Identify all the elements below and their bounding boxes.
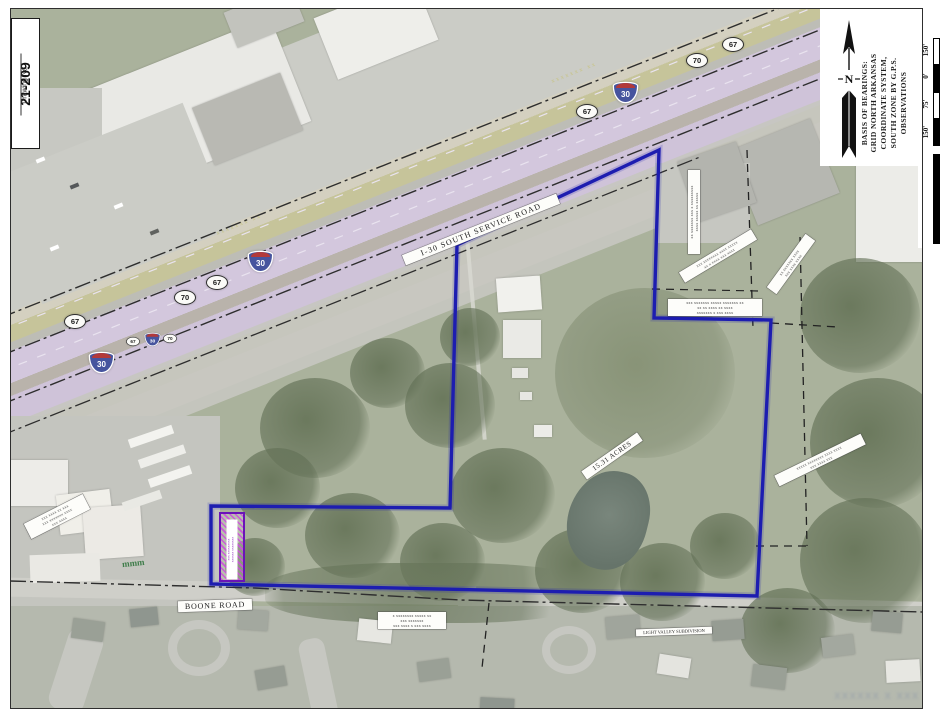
lane-line xyxy=(10,8,890,331)
us-70-shield: 70 xyxy=(686,53,708,68)
scale-segment xyxy=(933,92,940,119)
parcel-dash xyxy=(482,603,489,668)
north-arrow-panel: N BASIS OF BEARINGS: GRID NORTH ARKANSAS… xyxy=(820,9,923,166)
us-67-shield: 67 xyxy=(126,337,140,346)
us-70-shield: 70 xyxy=(163,334,177,343)
scale-bar: 150' 0' 75' 150' xyxy=(918,8,940,248)
parcel-dash xyxy=(652,289,760,291)
us-67-shield: 67 xyxy=(206,275,228,290)
drawing-number-caption: Drawing No. xyxy=(21,54,32,116)
linework-overlay xyxy=(10,8,923,709)
boone-centerline xyxy=(10,581,923,612)
scale-segment xyxy=(933,119,940,146)
access-easement-hatch: xxx xxxxxxxxx xxxxxx xxxxxxxx xyxy=(219,512,245,582)
parcel-dash xyxy=(771,323,838,327)
scale-tick: 150' xyxy=(922,122,930,142)
parcel-note: xxx xxxxxxx xxxxx xxxxxxx xx xx xx xxxx … xyxy=(668,299,762,316)
basis-of-bearings-note: BASIS OF BEARINGS: GRID NORTH ARKANSAS C… xyxy=(855,27,913,179)
parcel-note: xx xxxxxxx xxx x xxxxxxxxx xxxx xxxxx xx… xyxy=(688,170,700,254)
survey-map-page: mmm xxxxxxx xx xxxxxxx xx xyxy=(0,0,940,720)
scale-segment xyxy=(933,38,940,65)
boundary-glow xyxy=(211,150,771,596)
watermark: xxxxxx x xxx xyxy=(834,688,940,702)
row-line-south xyxy=(10,157,700,436)
aerial-map: mmm xxxxxxx xx xxxxxxx xx xyxy=(10,8,923,709)
bearings-line: SOUTH ZONE BY G.P.S. xyxy=(889,27,899,179)
us-70-shield: 70 xyxy=(174,290,196,305)
parcel-note: x xxxxxxxx xxxxx xx xxx xxxxxxx xxx xxxx… xyxy=(378,612,446,629)
us-67-shield: 67 xyxy=(64,314,86,329)
north-letter: N xyxy=(845,72,854,86)
parcel-dash xyxy=(800,237,807,546)
drawing-number-block: 21-209 Drawing No. xyxy=(11,18,40,149)
property-boundary xyxy=(211,150,771,596)
bearings-line: OBSERVATIONS xyxy=(899,27,909,179)
bearings-line: GRID NORTH ARKANSAS xyxy=(869,27,879,179)
scale-tick: 0' xyxy=(922,66,930,86)
bearings-line: BASIS OF BEARINGS: xyxy=(860,27,870,179)
bearings-line: COORDINATE SYSTEM, xyxy=(879,27,889,179)
easement-label: xxx xxxxxxxxx xxxxxx xxxxxxxx xyxy=(227,520,238,580)
scale-tick: 150' xyxy=(922,40,930,60)
scale-segment xyxy=(933,154,940,244)
scale-tick: 75' xyxy=(922,94,930,114)
us-67-shield: 67 xyxy=(576,104,598,119)
scale-segment xyxy=(933,65,940,92)
us-67-shield: 67 xyxy=(722,37,744,52)
